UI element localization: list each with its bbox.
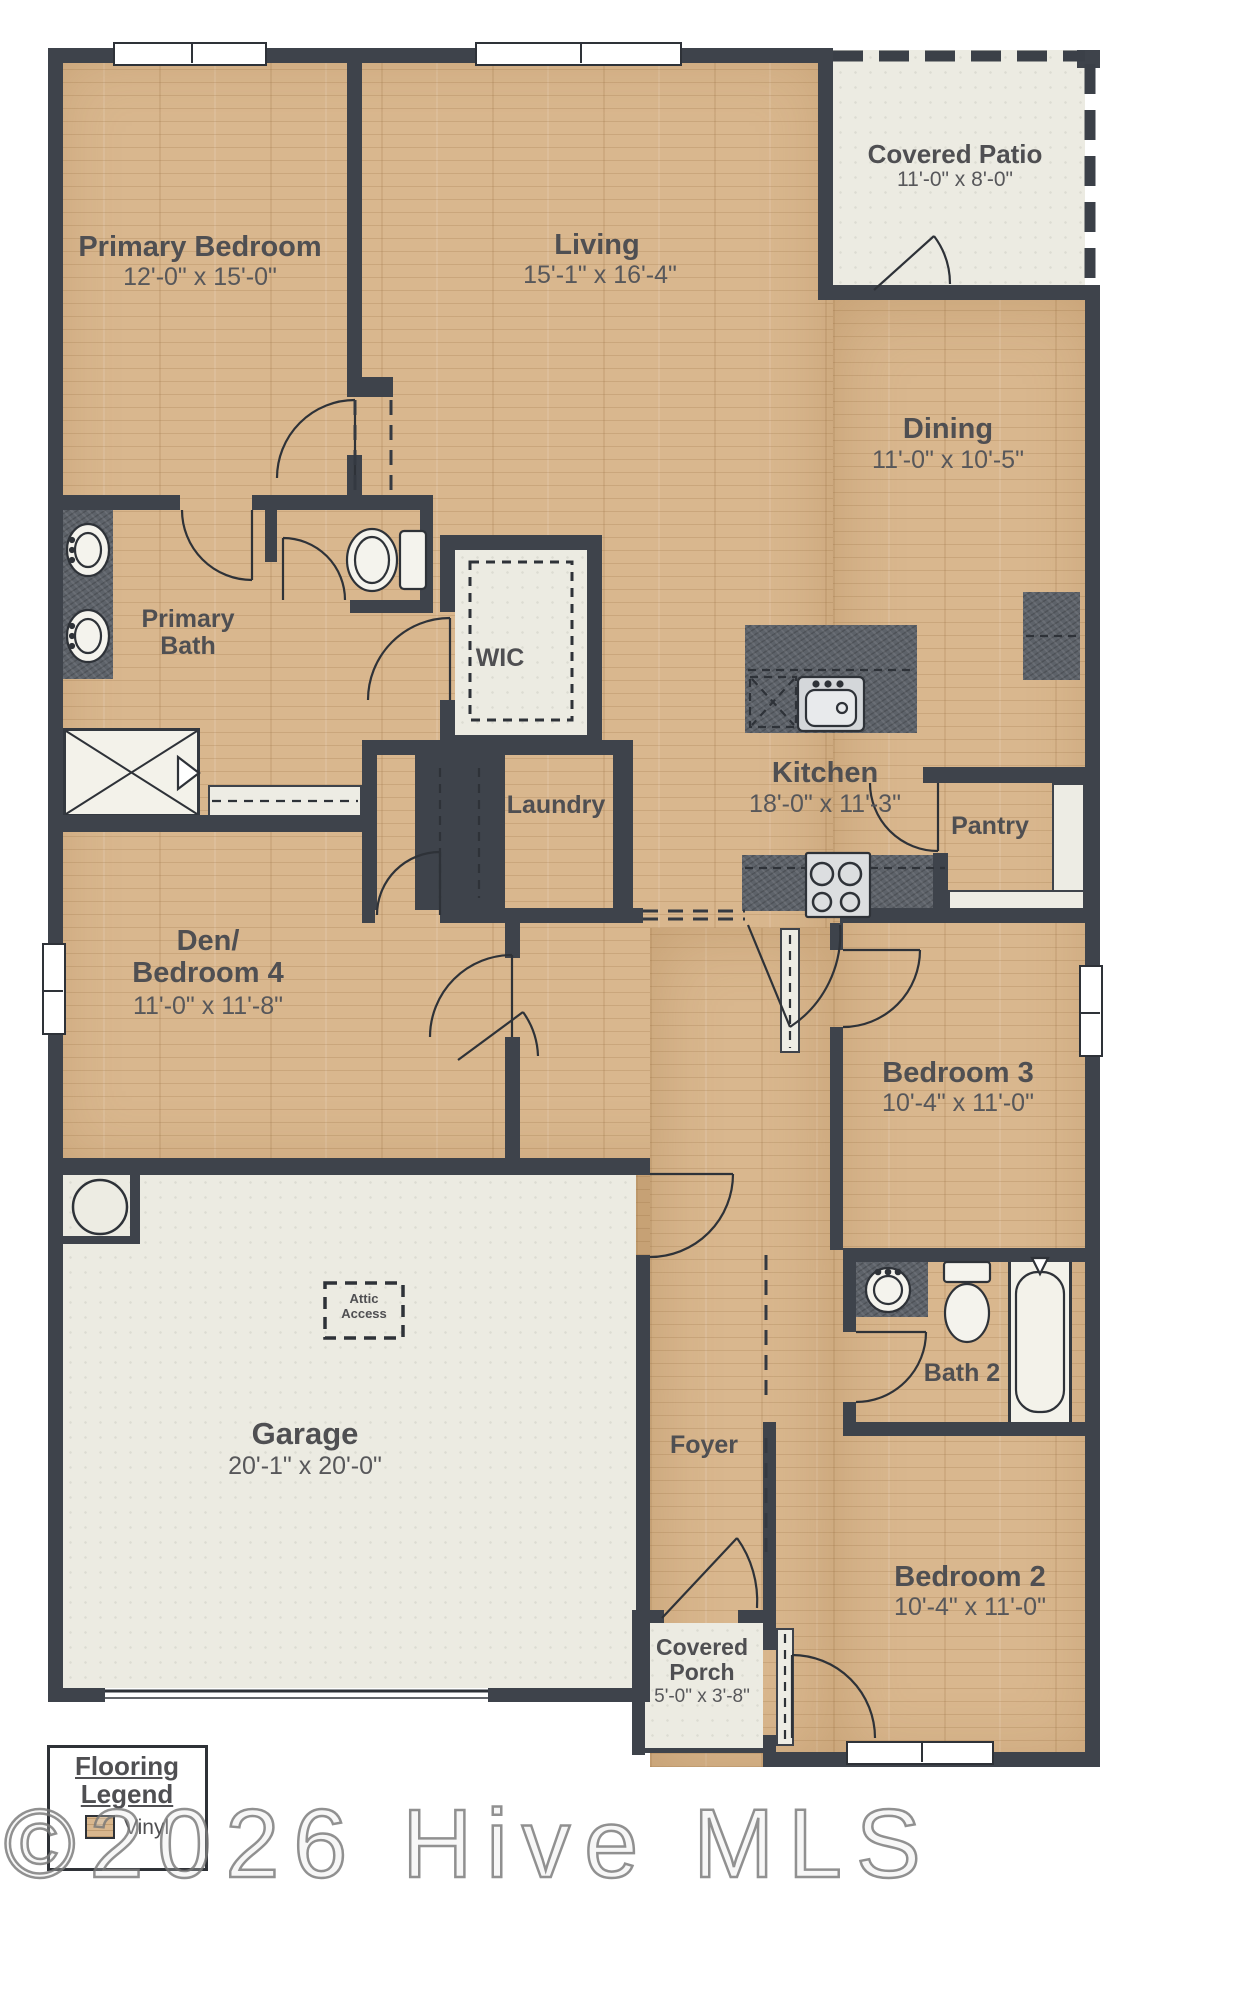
room-label-bath2: Bath 2 [924, 1360, 1000, 1386]
room-label-bedroom3: Bedroom 3 [882, 1058, 1033, 1088]
tub-inner [1016, 1258, 1064, 1412]
attic-access-label: Attic Access [325, 1292, 403, 1322]
room-label-laundry: Laundry [507, 792, 606, 818]
stove [806, 853, 870, 917]
room-dims-living: 15'-1" x 16'-4" [523, 262, 677, 288]
water-heater [73, 1180, 127, 1234]
room-label-primary-bedroom: Primary Bedroom [78, 232, 321, 262]
room-label-bedroom2: Bedroom 2 [894, 1562, 1045, 1592]
shelf-and-closet-dashes [212, 562, 790, 1742]
room-label-foyer: Foyer [670, 1432, 738, 1458]
room-dims-porch: 5'-0" x 3'-8" [654, 1687, 750, 1707]
room-label-primary-bath-1: Primary [141, 606, 234, 632]
room-label-garage: Garage [252, 1418, 359, 1451]
flooring-legend-title-1: Flooring [75, 1753, 179, 1780]
floor-plan: Primary Bedroom 12'-0" x 15'-0" Living 1… [0, 0, 1239, 2000]
attic-access-line1: Attic [350, 1291, 379, 1306]
room-dims-garage: 20'-1" x 20'-0" [228, 1453, 382, 1479]
mls-watermark: ©2026 Hive MLS [4, 1788, 935, 1900]
room-label-kitchen: Kitchen [772, 758, 878, 788]
room-label-primary-bath-2: Bath [160, 633, 216, 659]
room-label-porch-2: Porch [669, 1660, 734, 1684]
island-sink [798, 677, 864, 731]
door-arcs [182, 236, 950, 1738]
room-label-porch-1: Covered [656, 1635, 748, 1659]
room-dims-covered-patio: 11'-0" x 8'-0" [897, 169, 1013, 191]
room-label-living: Living [554, 230, 639, 260]
room-label-covered-patio: Covered Patio [868, 141, 1043, 168]
room-dims-kitchen: 18'-0" x 11'-3" [749, 791, 901, 817]
room-dims-bedroom2: 10'-4" x 11'-0" [894, 1594, 1046, 1620]
room-dims-bedroom3: 10'-4" x 11'-0" [882, 1090, 1034, 1116]
room-dims-den: 11'-0" x 11'-8" [133, 993, 283, 1019]
primary-toilet [347, 529, 426, 591]
room-label-pantry: Pantry [951, 813, 1029, 839]
bath2-sink [866, 1268, 910, 1312]
bath2-toilet [944, 1262, 990, 1342]
primary-bath-sinks [67, 524, 109, 662]
room-label-den-1: Den/ [177, 926, 240, 956]
room-label-wic: WIC [476, 645, 525, 671]
room-dims-dining: 11'-0" x 10'-5" [872, 447, 1024, 473]
attic-access-line2: Access [341, 1306, 387, 1321]
room-label-dining: Dining [903, 414, 993, 444]
garage-door-line [105, 1691, 488, 1698]
shower-glyph [66, 731, 199, 814]
room-label-den-2: Bedroom 4 [132, 958, 283, 988]
room-dims-primary-bedroom: 12'-0" x 15'-0" [123, 264, 277, 290]
